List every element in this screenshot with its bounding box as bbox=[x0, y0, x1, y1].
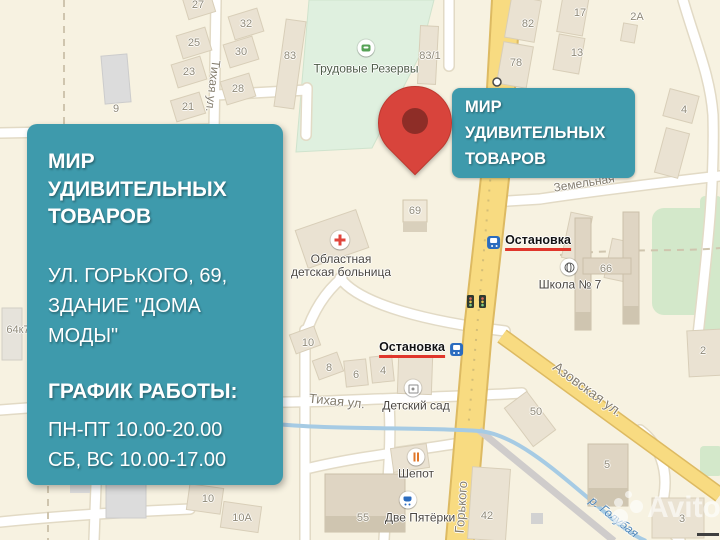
pin-callout-title: МИР УДИВИТЕЛЬНЫХ ТОВАРОВ bbox=[465, 94, 622, 172]
panel-schedule-line1: ПН-ПТ 10.00-20.00 bbox=[48, 415, 262, 445]
avito-logo-icon bbox=[612, 489, 645, 527]
panel-address-line1: УЛ. ГОРЬКОГО, 69, bbox=[48, 261, 262, 291]
panel-title: МИР УДИВИТЕЛЬНЫХ ТОВАРОВ bbox=[48, 148, 262, 231]
panel-address: УЛ. ГОРЬКОГО, 69, ЗДАНИЕ "ДОМА МОДЫ" bbox=[48, 261, 262, 351]
panel-schedule-line2: СБ, ВС 10.00-17.00 bbox=[48, 445, 262, 475]
map-pin-hole bbox=[402, 108, 428, 134]
panel-schedule: ПН-ПТ 10.00-20.00 СБ, ВС 10.00-17.00 bbox=[48, 415, 262, 475]
map-pin bbox=[378, 86, 452, 196]
panel-address-line2: ЗДАНИЕ "ДОМА МОДЫ" bbox=[48, 291, 262, 351]
pin-callout: МИР УДИВИТЕЛЬНЫХ ТОВАРОВ bbox=[452, 88, 635, 178]
avito-watermark-text: Avito bbox=[647, 489, 720, 527]
map-screenshot: 2732253023282198383/1827817132А4666964к7… bbox=[0, 0, 720, 540]
avito-watermark: Avito bbox=[612, 489, 720, 527]
info-panel: МИР УДИВИТЕЛЬНЫХ ТОВАРОВ УЛ. ГОРЬКОГО, 6… bbox=[27, 124, 283, 485]
map-scale-bar bbox=[697, 533, 719, 536]
panel-schedule-heading: ГРАФИК РАБОТЫ: bbox=[48, 380, 262, 404]
